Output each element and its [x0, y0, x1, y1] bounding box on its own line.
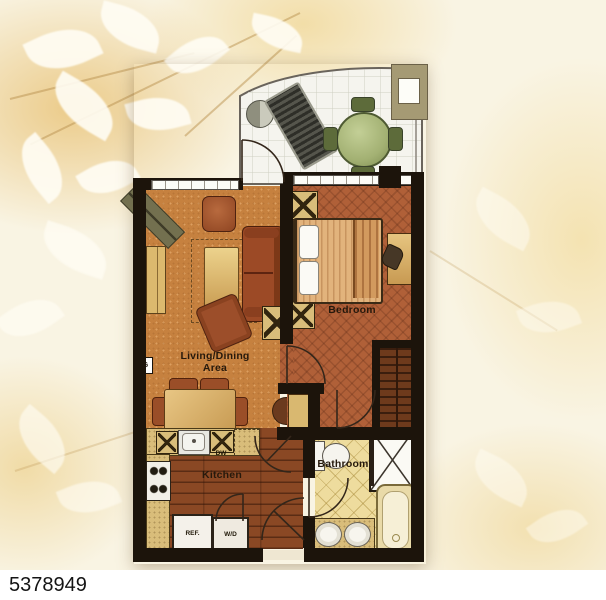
door-swings	[0, 0, 606, 600]
closet-door-swing	[337, 390, 375, 428]
bathroom-door-swing	[309, 478, 348, 517]
listing-id: 5378949	[9, 574, 87, 597]
listing-id-bar: 5378949	[0, 570, 606, 600]
hall-door-swing	[255, 436, 291, 472]
balcony-door-swing	[242, 140, 284, 182]
entry-door-swing	[262, 498, 304, 540]
laundry-door-swing	[216, 494, 243, 521]
floor-plan-image: Living/Dining Area G DW Kitchen REF. W/D…	[0, 0, 606, 600]
bedroom-door-swing	[287, 346, 325, 384]
